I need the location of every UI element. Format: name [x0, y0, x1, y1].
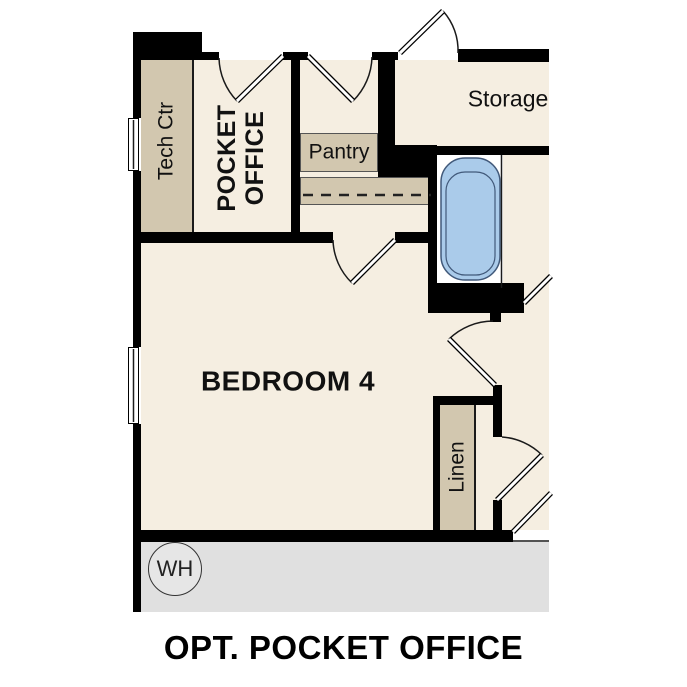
window-upper — [128, 118, 139, 171]
wall-linen-top — [433, 396, 498, 405]
water-heater-symbol: WH — [148, 542, 202, 596]
bedroom-label: BEDROOM 4 — [201, 367, 375, 398]
wall-bath-door-jamb — [490, 313, 501, 322]
wall-office-vertical — [291, 52, 300, 233]
wall-junction-chunk — [378, 145, 437, 177]
pocket-office-label-line1: POCKET — [213, 104, 241, 211]
pantry-label: Pantry — [309, 140, 370, 163]
wall-linen-left — [433, 396, 440, 536]
pantry-shelf-band — [300, 177, 433, 205]
pocket-office-label: POCKET OFFICE — [213, 104, 269, 211]
linen-edge-line — [474, 405, 476, 531]
wall-bath-stub — [493, 385, 502, 437]
wall-top-left-chunk — [133, 32, 202, 60]
wall-linen-stub — [493, 500, 502, 532]
wall-left-bottom — [133, 424, 141, 612]
wall-tub-left — [428, 177, 437, 283]
floor-plan: Tech Ctr POCKET OFFICE Pantry Storage BE… — [0, 0, 687, 687]
tech-ctr-label: Tech Ctr — [154, 102, 177, 180]
linen-label: Linen — [445, 441, 468, 492]
wall-below-tub — [428, 283, 524, 313]
wall-left-mid — [133, 171, 141, 347]
wall-bedroom-bottom — [133, 530, 513, 542]
plan-title: OPT. POCKET OFFICE — [0, 629, 687, 667]
water-heater-label: WH — [157, 556, 194, 582]
wall-office-bottom-right — [395, 232, 437, 243]
wall-storage-bottom — [437, 146, 549, 155]
window-lower — [128, 347, 139, 424]
tub-alcove — [437, 155, 503, 288]
wall-top-a — [202, 52, 219, 60]
wall-storage-left — [378, 52, 395, 145]
wall-top-right — [458, 49, 549, 62]
storage-door-arc — [443, 11, 458, 53]
garage-floor — [141, 542, 549, 612]
tech-ctr-edge-line — [192, 60, 194, 233]
storage-door-leaf — [400, 11, 443, 53]
wall-left-top — [133, 32, 141, 118]
storage-label: Storage — [468, 86, 549, 111]
pocket-office-label-line2: OFFICE — [241, 104, 269, 211]
wall-office-bottom-left — [133, 232, 333, 243]
